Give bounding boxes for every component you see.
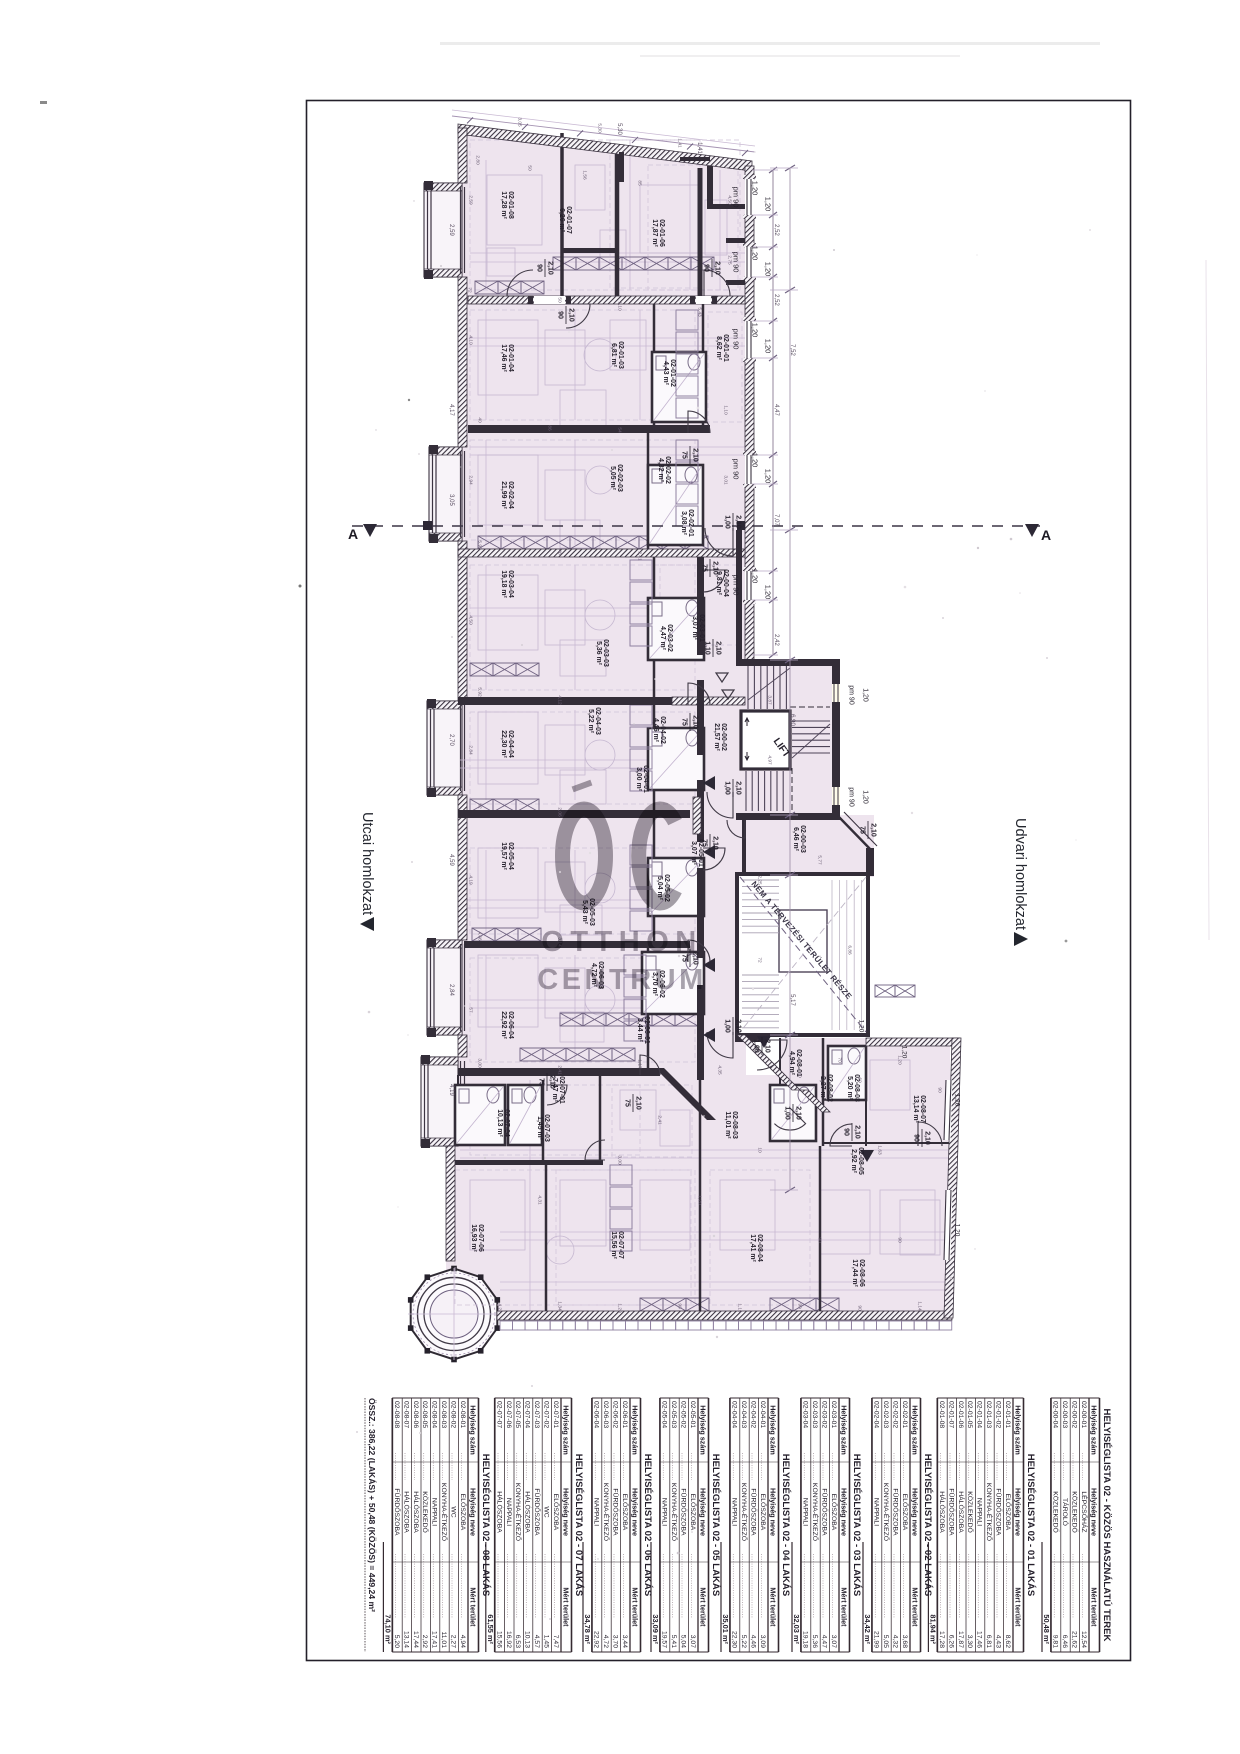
svg-text:Helyiség neve: Helyiség neve [769, 1488, 778, 1536]
svg-text:2,10: 2,10 [712, 561, 719, 575]
svg-text:02-06-0422,92 m²: 02-06-0422,92 m² [500, 1011, 514, 1039]
svg-text:HÁLÓSZOBA: HÁLÓSZOBA [402, 1491, 411, 1533]
svg-text:54: 54 [616, 427, 622, 433]
svg-text:10,13: 10,13 [524, 1631, 531, 1648]
svg-text:1,00: 1,00 [724, 781, 731, 795]
svg-text:ELŐSZOBA: ELŐSZOBA [830, 1494, 839, 1531]
svg-text:ELŐSZOBA: ELŐSZOBA [1004, 1494, 1013, 1531]
svg-text:HELYISÉGLISTA 02 - 03 LAKÁS: HELYISÉGLISTA 02 - 03 LAKÁS [851, 1454, 863, 1597]
svg-text:15,56: 15,56 [495, 1631, 502, 1648]
svg-text:02-04-013,00 m²: 02-04-013,00 m² [635, 765, 649, 793]
svg-text:1,20: 1,20 [862, 688, 869, 702]
svg-text:1,20: 1,20 [763, 585, 772, 600]
svg-text:Helyiség neve: Helyiség neve [562, 1488, 571, 1536]
svg-text:19,57: 19,57 [661, 1631, 668, 1648]
svg-text:HELYISÉGLISTA 02 - KÖZÖS HASZN: HELYISÉGLISTA 02 - KÖZÖS HASZNÁLATÚ TERE… [1101, 1409, 1113, 1642]
svg-text:8,62: 8,62 [1004, 1635, 1011, 1648]
svg-text:52: 52 [476, 803, 482, 809]
svg-text:02-02-035,05 m²: 02-02-035,05 m² [609, 464, 623, 492]
svg-text:2,41: 2,41 [636, 551, 642, 561]
svg-text:FÜRDŐSZOBA: FÜRDŐSZOBA [947, 1488, 956, 1536]
svg-text:5,43: 5,43 [696, 307, 702, 317]
svg-text:HÁLÓSZOBA: HÁLÓSZOBA [412, 1491, 421, 1533]
svg-text:7,52: 7,52 [789, 344, 795, 356]
svg-text:ÖSSZ.: 386,22 (LAKÁS) + 50,48: ÖSSZ.: 386,22 (LAKÁS) + 50,48 (KÖZÖS) = … [367, 1398, 377, 1612]
svg-text:Mért terület: Mért terület [631, 1587, 640, 1627]
svg-text:02-08-02: 02-08-02 [449, 1401, 456, 1428]
svg-text:2,84: 2,84 [448, 984, 454, 996]
svg-text:02-04-03: 02-04-03 [740, 1401, 747, 1428]
svg-text:21,99: 21,99 [873, 1631, 880, 1648]
svg-text:4,50: 4,50 [467, 615, 473, 625]
svg-text:19,18: 19,18 [802, 1631, 809, 1648]
svg-text:02-08-06: 02-08-06 [412, 1401, 419, 1428]
svg-text:6,53: 6,53 [514, 1635, 521, 1648]
svg-text:90: 90 [796, 1303, 802, 1309]
svg-text:6,81: 6,81 [985, 1635, 992, 1648]
svg-text:3,00: 3,00 [616, 1155, 622, 1165]
svg-text:02-01-06: 02-01-06 [957, 1401, 964, 1428]
svg-text:17,41: 17,41 [431, 1631, 438, 1648]
svg-text:02-07-07: 02-07-07 [495, 1401, 502, 1428]
svg-text:7,07: 7,07 [773, 514, 779, 526]
svg-text:1,20: 1,20 [763, 339, 772, 354]
svg-text:4,43: 4,43 [994, 1635, 1001, 1648]
svg-text:2,27: 2,27 [449, 1635, 456, 1648]
svg-text:02-08-0713,14 m²: 02-08-0713,14 m² [912, 1095, 926, 1123]
svg-text:1,41: 1,41 [676, 138, 682, 148]
svg-text:02-04-035,22 m²: 02-04-035,22 m² [587, 707, 601, 735]
svg-text:75: 75 [681, 718, 688, 726]
svg-text:2,25: 2,25 [756, 875, 762, 885]
svg-text:2,41: 2,41 [556, 1065, 562, 1075]
svg-text:2,10: 2,10 [854, 1125, 861, 1139]
svg-text:60: 60 [856, 1077, 862, 1083]
svg-text:ELŐSZOBA: ELŐSZOBA [901, 1494, 910, 1531]
svg-text:75: 75 [538, 1078, 545, 1086]
svg-text:16,92: 16,92 [505, 1631, 512, 1648]
svg-text:1,20: 1,20 [750, 246, 759, 261]
svg-text:2,10: 2,10 [712, 836, 719, 850]
svg-text:2,92: 2,92 [421, 1635, 428, 1648]
svg-text:75: 75 [681, 451, 688, 459]
svg-text:3,87: 3,87 [766, 695, 772, 705]
svg-text:02-03-04: 02-03-04 [802, 1401, 809, 1428]
svg-text:4,57: 4,57 [533, 1635, 540, 1648]
svg-text:1,20: 1,20 [954, 1094, 961, 1107]
svg-text:Udvari homlokzat: Udvari homlokzat [1012, 818, 1028, 930]
svg-text:72: 72 [466, 287, 472, 293]
svg-text:10: 10 [796, 1072, 802, 1078]
svg-text:5,05: 5,05 [882, 1635, 889, 1648]
svg-text:pm 90: pm 90 [731, 459, 740, 480]
svg-text:02-05-02: 02-05-02 [679, 1401, 686, 1428]
svg-text:3,01: 3,01 [722, 475, 728, 485]
svg-text:1,20: 1,20 [763, 197, 772, 212]
svg-text:17,46: 17,46 [976, 1631, 983, 1648]
svg-text:NAPPALI: NAPPALI [873, 1498, 880, 1526]
svg-text:02-08-08: 02-08-08 [393, 1401, 400, 1428]
svg-text:02-01-018,62 m²: 02-01-018,62 m² [715, 334, 729, 362]
svg-text:02-02-013,08 m²: 02-02-013,08 m² [680, 509, 694, 537]
svg-text:KONYHA-ÉTKEZŐ: KONYHA-ÉTKEZŐ [882, 1483, 891, 1541]
svg-text:6,46: 6,46 [1061, 1635, 1068, 1648]
svg-text:2,84: 2,84 [467, 745, 473, 755]
svg-text:2,59: 2,59 [448, 224, 454, 236]
svg-text:02-01-0417,46 m²: 02-01-0417,46 m² [500, 344, 514, 372]
svg-text:02-02-01: 02-02-01 [901, 1401, 908, 1428]
svg-text:FÜRDŐSZOBA: FÜRDŐSZOBA [611, 1488, 620, 1536]
svg-text:02-02-0421,99 m²: 02-02-0421,99 m² [500, 481, 514, 509]
svg-text:KÖZLEKEDŐ: KÖZLEKEDŐ [421, 1491, 430, 1533]
svg-text:1,20: 1,20 [750, 181, 759, 196]
svg-text:pm 90: pm 90 [731, 252, 740, 273]
svg-text:HELYISÉGLISTA 02 - 04 LAKÁS: HELYISÉGLISTA 02 - 04 LAKÁS [780, 1454, 792, 1597]
svg-text:9,81: 9,81 [1052, 1635, 1059, 1648]
svg-text:5,04: 5,04 [679, 1635, 686, 1648]
svg-text:02-07-05: 02-07-05 [514, 1401, 521, 1428]
svg-text:21,62: 21,62 [1070, 1631, 1077, 1648]
svg-text:pm 90: pm 90 [731, 187, 740, 208]
svg-text:KÖZLEKEDŐ: KÖZLEKEDŐ [966, 1491, 975, 1533]
svg-text:2,10: 2,10 [692, 715, 699, 729]
svg-text:50,48 m²: 50,48 m² [1042, 1614, 1051, 1644]
svg-text:HELYISÉGLISTA 02 - 01 LAKÁS: HELYISÉGLISTA 02 - 01 LAKÁS [1025, 1454, 1037, 1597]
svg-text:LÉPCSŐHÁZ: LÉPCSŐHÁZ [1080, 1491, 1089, 1532]
svg-text:02-02-024,32 m²: 02-02-024,32 m² [657, 456, 671, 484]
svg-text:90: 90 [856, 1305, 862, 1311]
svg-text:HELYISÉGLISTA 02 - 05 LAKÁS: HELYISÉGLISTA 02 - 05 LAKÁS [710, 1454, 722, 1597]
svg-text:Helyiség neve: Helyiség neve [1014, 1488, 1023, 1536]
svg-text:ELŐSZOBA: ELŐSZOBA [689, 1494, 698, 1531]
svg-text:Mért terület: Mért terület [840, 1587, 849, 1627]
svg-text:50: 50 [526, 165, 532, 171]
svg-text:02-07-0410,13 m²: 02-07-0410,13 m² [496, 1109, 510, 1137]
svg-text:10: 10 [756, 1147, 762, 1153]
svg-text:02-03-013,07 m²: 02-03-013,07 m² [691, 614, 705, 642]
svg-text:86: 86 [546, 425, 552, 431]
svg-text:KONYHA-ÉTKEZŐ: KONYHA-ÉTKEZŐ [602, 1483, 611, 1541]
svg-text:Helyiség szám: Helyiség szám [469, 1405, 478, 1455]
svg-text:4,47: 4,47 [773, 404, 779, 416]
svg-text:3,05: 3,05 [448, 494, 454, 506]
svg-text:02-05-01: 02-05-01 [689, 1401, 696, 1428]
svg-text:57: 57 [467, 1007, 473, 1013]
svg-text:4,19: 4,19 [448, 1084, 454, 1096]
svg-text:KÖZLEKEDŐ: KÖZLEKEDŐ [1070, 1491, 1079, 1533]
svg-text:5,17: 5,17 [789, 994, 795, 1006]
svg-text:1,20: 1,20 [896, 1055, 902, 1065]
svg-text:02-02-02: 02-02-02 [891, 1401, 898, 1428]
svg-text:1,34: 1,34 [556, 1301, 562, 1311]
svg-text:2,75: 2,75 [726, 255, 732, 265]
svg-text:02-08-022,27 m²: 02-08-022,27 m² [819, 1074, 833, 1102]
svg-text:02-08-052,92 m²: 02-08-052,92 m² [850, 1147, 864, 1175]
svg-text:NAPPALI: NAPPALI [593, 1498, 600, 1526]
svg-text:90: 90 [703, 264, 710, 272]
svg-text:02-05-0419,57 m²: 02-05-0419,57 m² [500, 842, 514, 870]
svg-text:2,10: 2,10 [549, 1075, 556, 1089]
svg-text:HELYISÉGLISTA 02 - 07 LAKÁS: HELYISÉGLISTA 02 - 07 LAKÁS [573, 1454, 585, 1597]
svg-text:1,10: 1,10 [722, 405, 728, 415]
svg-text:40: 40 [476, 417, 482, 423]
svg-text:7,47: 7,47 [552, 1635, 559, 1648]
svg-text:02-08-03: 02-08-03 [440, 1401, 447, 1428]
svg-text:02-03-024,47 m²: 02-03-024,47 m² [659, 624, 673, 652]
svg-text:Helyiség neve: Helyiség neve [469, 1488, 478, 1536]
svg-text:Mért terület: Mért terület [699, 1587, 708, 1627]
svg-text:2,10: 2,10 [795, 1106, 802, 1120]
svg-text:FÜRDŐSZOBA: FÜRDŐSZOBA [679, 1488, 688, 1536]
svg-text:02-03-03: 02-03-03 [811, 1401, 818, 1428]
svg-text:3,07: 3,07 [689, 1635, 696, 1648]
svg-text:Helyiség szám: Helyiség szám [1014, 1405, 1023, 1455]
svg-text:02-07-02: 02-07-02 [542, 1401, 549, 1428]
svg-text:17,28: 17,28 [938, 1631, 945, 1648]
svg-text:61,55 m²: 61,55 m² [486, 1614, 495, 1644]
svg-text:2,10: 2,10 [692, 448, 699, 462]
svg-text:90: 90 [536, 264, 543, 272]
svg-text:1,20: 1,20 [750, 569, 759, 584]
svg-text:1,00: 1,00 [724, 515, 731, 529]
svg-text:Helyiség neve: Helyiség neve [911, 1488, 920, 1536]
svg-text:WC: WC [449, 1506, 456, 1517]
svg-text:90: 90 [896, 1237, 902, 1243]
svg-text:02-00-03: 02-00-03 [1061, 1401, 1068, 1428]
svg-text:OTTHON: OTTHON [541, 926, 702, 958]
svg-text:Mért terület: Mért terület [1014, 1587, 1023, 1627]
svg-text:70: 70 [836, 1057, 842, 1063]
svg-text:1,20: 1,20 [696, 1195, 702, 1205]
svg-text:HELYISÉGLISTA 02 - 08 LAKÁS: HELYISÉGLISTA 02 - 08 LAKÁS [480, 1454, 492, 1597]
svg-text:02-01-02: 02-01-02 [994, 1401, 1001, 1428]
svg-text:02-02-03: 02-02-03 [882, 1401, 889, 1428]
svg-text:02-08-04: 02-08-04 [431, 1401, 438, 1428]
svg-text:02-01-076,26 m²: 02-01-076,26 m² [558, 206, 572, 234]
svg-text:5,36: 5,36 [811, 1635, 818, 1648]
svg-text:Helyiség szám: Helyiség szám [1090, 1405, 1099, 1455]
svg-text:2,10: 2,10 [764, 1039, 771, 1053]
svg-text:1,20: 1,20 [750, 453, 759, 468]
svg-text:1,20: 1,20 [616, 1303, 622, 1313]
svg-text:Helyiség szám: Helyiség szám [631, 1405, 640, 1455]
svg-text:02-07-0616,93 m²: 02-07-0616,93 m² [470, 1224, 484, 1252]
svg-text:02-07-01: 02-07-01 [552, 1401, 559, 1428]
svg-text:A: A [348, 526, 358, 542]
svg-text:3,09: 3,09 [759, 1635, 766, 1648]
svg-text:02-01-024,43 m²: 02-01-024,43 m² [662, 359, 676, 387]
svg-text:4,97: 4,97 [766, 755, 772, 765]
svg-text:2,94: 2,94 [467, 475, 473, 485]
svg-text:02-04-024,46 m²: 02-04-024,46 m² [652, 716, 666, 744]
svg-text:FÜRDŐSZOBA: FÜRDŐSZOBA [393, 1488, 402, 1536]
svg-text:02-00-0221,57 m²: 02-00-0221,57 m² [713, 723, 727, 751]
svg-text:5,92: 5,92 [476, 540, 482, 550]
svg-text:02-08-05: 02-08-05 [421, 1401, 428, 1428]
svg-text:Mért terület: Mért terület [911, 1587, 920, 1627]
svg-text:FÜRDŐSZOBA: FÜRDŐSZOBA [533, 1488, 542, 1536]
svg-text:02-01-05: 02-01-05 [966, 1401, 973, 1428]
svg-text:5,22: 5,22 [740, 1635, 747, 1648]
svg-text:02-07-0715,56 m²: 02-07-0715,56 m² [610, 1231, 624, 1259]
svg-text:02-01-07: 02-01-07 [947, 1401, 954, 1428]
svg-text:6,90: 6,90 [789, 714, 795, 726]
svg-text:02-03-035,36 m²: 02-03-035,36 m² [595, 639, 609, 667]
svg-text:02-04-01: 02-04-01 [759, 1401, 766, 1428]
svg-text:2,10: 2,10 [870, 823, 877, 837]
svg-text:02-05-04: 02-05-04 [661, 1401, 668, 1428]
svg-text:02-08-01: 02-08-01 [459, 1401, 466, 1428]
svg-text:2,10: 2,10 [735, 1019, 742, 1033]
svg-text:3,68: 3,68 [901, 1635, 908, 1648]
svg-text:02-03-02: 02-03-02 [820, 1401, 827, 1428]
svg-text:02-03-0419,18 m²: 02-03-0419,18 m² [500, 570, 514, 598]
svg-text:2,41: 2,41 [656, 1115, 662, 1125]
svg-text:1,20: 1,20 [750, 323, 759, 338]
svg-text:90: 90 [913, 1134, 920, 1142]
svg-text:HELYISÉGLISTA 02 - 06 LAKÁS: HELYISÉGLISTA 02 - 06 LAKÁS [642, 1454, 654, 1597]
svg-text:32,03 m²: 32,03 m² [792, 1614, 801, 1644]
svg-text:17,87: 17,87 [957, 1631, 964, 1648]
svg-text:3,70: 3,70 [611, 1635, 618, 1648]
svg-text:02-00-02: 02-00-02 [1070, 1401, 1077, 1428]
svg-text:KONYHA-ÉTKEZŐ: KONYHA-ÉTKEZŐ [440, 1483, 449, 1541]
svg-text:Mért terület: Mért terület [769, 1587, 778, 1627]
svg-text:4,50: 4,50 [726, 195, 732, 205]
svg-text:2,52: 2,52 [773, 294, 779, 306]
svg-text:5,77: 5,77 [816, 855, 822, 865]
svg-text:22,92: 22,92 [593, 1631, 600, 1648]
svg-text:1,20: 1,20 [763, 469, 772, 484]
svg-text:1,10: 1,10 [616, 301, 622, 311]
svg-text:85: 85 [636, 180, 642, 186]
svg-text:2,52: 2,52 [773, 224, 779, 236]
svg-text:90: 90 [936, 1087, 942, 1093]
svg-text:02-07-04: 02-07-04 [524, 1401, 531, 1428]
svg-text:ELŐSZOBA: ELŐSZOBA [459, 1494, 468, 1531]
svg-text:90: 90 [557, 311, 564, 319]
svg-text:pm 90: pm 90 [848, 685, 855, 705]
svg-text:FÜRDŐSZOBA: FÜRDŐSZOBA [820, 1488, 829, 1536]
svg-text:Helyiség neve: Helyiség neve [631, 1488, 640, 1536]
svg-text:Helyiség neve: Helyiség neve [1090, 1488, 1099, 1536]
svg-text:02-01-01: 02-01-01 [1004, 1401, 1011, 1428]
svg-text:74,10 m²: 74,10 m² [384, 1614, 393, 1644]
svg-text:KONYHA-ÉTKEZŐ: KONYHA-ÉTKEZŐ [670, 1483, 679, 1541]
svg-text:12,54: 12,54 [1080, 1631, 1087, 1648]
svg-text:2,06: 2,06 [556, 807, 562, 817]
svg-text:3,07: 3,07 [830, 1635, 837, 1648]
svg-text:1,00: 1,00 [784, 1106, 791, 1120]
svg-text:FÜRDŐSZOBA: FÜRDŐSZOBA [749, 1488, 758, 1536]
svg-text:02-04-04: 02-04-04 [731, 1401, 738, 1428]
svg-text:HELYISÉGLISTA 02 - 02 LAKÁS: HELYISÉGLISTA 02 - 02 LAKÁS [922, 1454, 934, 1597]
svg-text:Helyiség neve: Helyiség neve [699, 1488, 708, 1536]
svg-text:35,01 m²: 35,01 m² [721, 1614, 730, 1644]
svg-text:5,30: 5,30 [596, 123, 602, 133]
svg-text:pm 90: pm 90 [731, 329, 740, 350]
svg-text:ELŐSZOBA: ELŐSZOBA [552, 1494, 561, 1531]
svg-text:02-02-04: 02-02-04 [873, 1401, 880, 1428]
svg-text:2,10: 2,10 [735, 781, 742, 795]
svg-text:13,14: 13,14 [402, 1631, 409, 1648]
svg-text:2,10: 2,10 [735, 515, 742, 529]
svg-text:75: 75 [701, 839, 708, 847]
svg-text:02-07-031,45 m²: 02-07-031,45 m² [536, 1114, 550, 1142]
svg-text:Utcai homlokzat: Utcai homlokzat [359, 812, 375, 915]
svg-text:HÁLÓSZOBA: HÁLÓSZOBA [938, 1491, 947, 1533]
svg-text:1,00: 1,00 [753, 1039, 760, 1053]
svg-text:02-03-01: 02-03-01 [830, 1401, 837, 1428]
svg-text:ELŐSZOBA: ELŐSZOBA [621, 1494, 630, 1531]
svg-text:02-08-0417,41 m²: 02-08-0417,41 m² [749, 1234, 763, 1262]
svg-text:02-01-0817,28 m²: 02-01-0817,28 m² [500, 191, 514, 219]
svg-text:02-07-06: 02-07-06 [505, 1401, 512, 1428]
svg-text:FÜRDŐSZOBA: FÜRDŐSZOBA [891, 1488, 900, 1536]
svg-text:2,10: 2,10 [924, 1131, 931, 1145]
svg-text:KONYHA-ÉTKEZŐ: KONYHA-ÉTKEZŐ [740, 1483, 749, 1541]
svg-text:1,00: 1,00 [724, 1019, 731, 1033]
svg-text:Helyiség szám: Helyiség szám [699, 1405, 708, 1455]
svg-text:72: 72 [756, 957, 762, 963]
svg-text:75: 75 [859, 826, 866, 834]
svg-text:3,44: 3,44 [621, 1635, 628, 1648]
svg-text:02-06-013,44 m²: 02-06-013,44 m² [636, 1016, 650, 1044]
svg-text:NAPPALI: NAPPALI [731, 1498, 738, 1526]
svg-text:46: 46 [556, 549, 562, 555]
svg-text:Mért terület: Mért terület [469, 1587, 478, 1627]
svg-text:4,47: 4,47 [820, 1635, 827, 1648]
svg-text:Helyiség szám: Helyiség szám [840, 1405, 849, 1455]
svg-text:02-00-04: 02-00-04 [1052, 1401, 1059, 1428]
svg-text:90: 90 [843, 1128, 850, 1136]
svg-text:02-04-02: 02-04-02 [749, 1401, 756, 1428]
svg-text:4,21: 4,21 [496, 1303, 502, 1313]
svg-text:02-07-03: 02-07-03 [533, 1401, 540, 1428]
svg-text:4,72: 4,72 [602, 1635, 609, 1648]
svg-text:02-00-036,46 m²: 02-00-036,46 m² [792, 825, 806, 853]
svg-text:HÁLÓSZOBA: HÁLÓSZOBA [957, 1491, 966, 1533]
svg-text:A: A [1041, 527, 1051, 543]
svg-text:Helyiség szám: Helyiség szám [562, 1405, 571, 1455]
svg-text:NAPPALI: NAPPALI [431, 1498, 438, 1526]
svg-text:34,42 m²: 34,42 m² [863, 1614, 872, 1644]
svg-text:3,00: 3,00 [476, 1058, 482, 1068]
svg-text:6,86: 6,86 [846, 945, 852, 955]
svg-text:3,05: 3,05 [516, 117, 522, 127]
svg-text:34,78 m²: 34,78 m² [583, 1614, 592, 1644]
svg-text:02-04-0422,30 m²: 02-04-0422,30 m² [500, 730, 514, 758]
svg-text:1,20: 1,20 [954, 1224, 961, 1237]
svg-text:75: 75 [701, 564, 708, 572]
svg-text:1,45: 1,45 [542, 1635, 549, 1648]
svg-text:1,20: 1,20 [763, 262, 772, 277]
svg-text:NAPPALI: NAPPALI [976, 1498, 983, 1526]
svg-text:02-06-01: 02-06-01 [621, 1401, 628, 1428]
svg-text:2,10: 2,10 [715, 641, 722, 655]
svg-text:4,19: 4,19 [467, 875, 473, 885]
svg-text:11,01: 11,01 [440, 1631, 447, 1648]
svg-text:FÜRDŐSZOBA: FÜRDŐSZOBA [994, 1488, 1003, 1536]
svg-text:4,17: 4,17 [448, 404, 454, 416]
svg-text:1,17: 1,17 [636, 1059, 642, 1069]
svg-text:pm 90: pm 90 [731, 575, 740, 596]
svg-text:1,63: 1,63 [876, 1145, 882, 1155]
svg-text:KÖZLEKEDŐ: KÖZLEKEDŐ [1052, 1491, 1061, 1533]
svg-text:02-08-07: 02-08-07 [402, 1401, 409, 1428]
svg-text:Helyiség szám: Helyiség szám [769, 1405, 778, 1455]
svg-text:17,44: 17,44 [412, 1631, 419, 1648]
